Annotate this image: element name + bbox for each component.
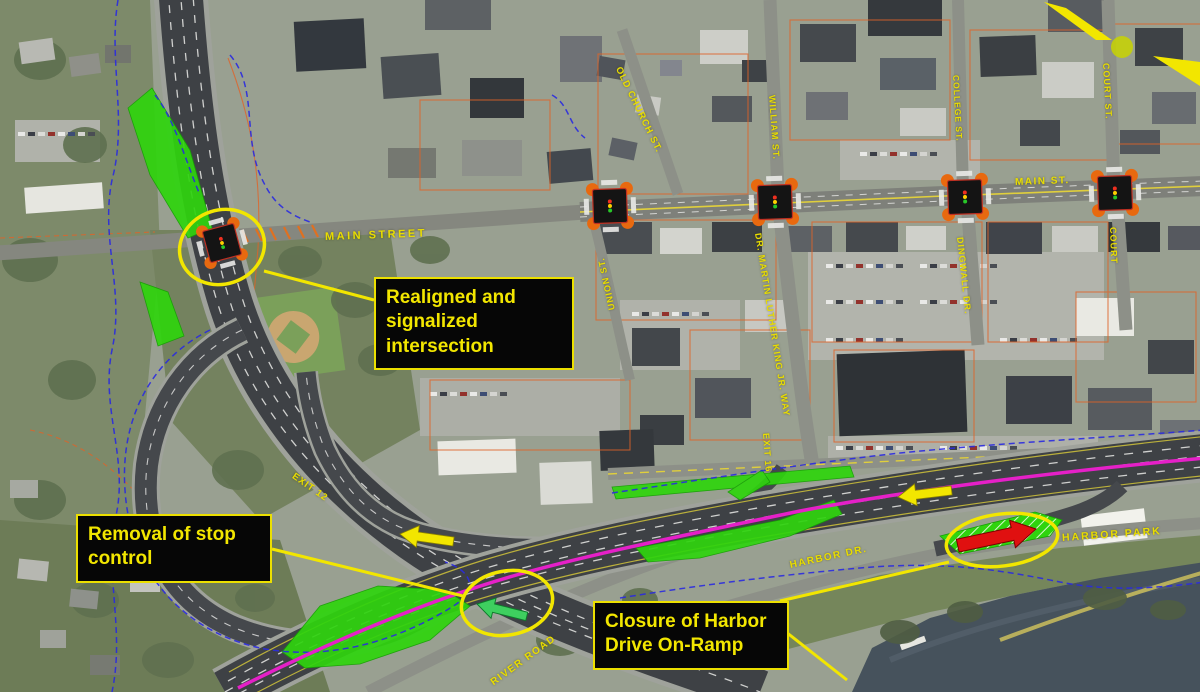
- callout-realigned-intersection: Realigned and signalized intersection: [374, 277, 574, 370]
- street-label-main-st: MAIN ST.: [1015, 175, 1070, 188]
- aerial-plan-map: MAIN STREET MAIN ST. OLD CHURCH ST. WILL…: [0, 0, 1200, 692]
- map-canvas: [0, 0, 1200, 692]
- street-label-court: COURT: [1108, 227, 1119, 264]
- callout-harbor-drive-closure: Closure of Harbor Drive On-Ramp: [593, 601, 789, 670]
- callout-removal-of-stop-control: Removal of stop control: [76, 514, 272, 583]
